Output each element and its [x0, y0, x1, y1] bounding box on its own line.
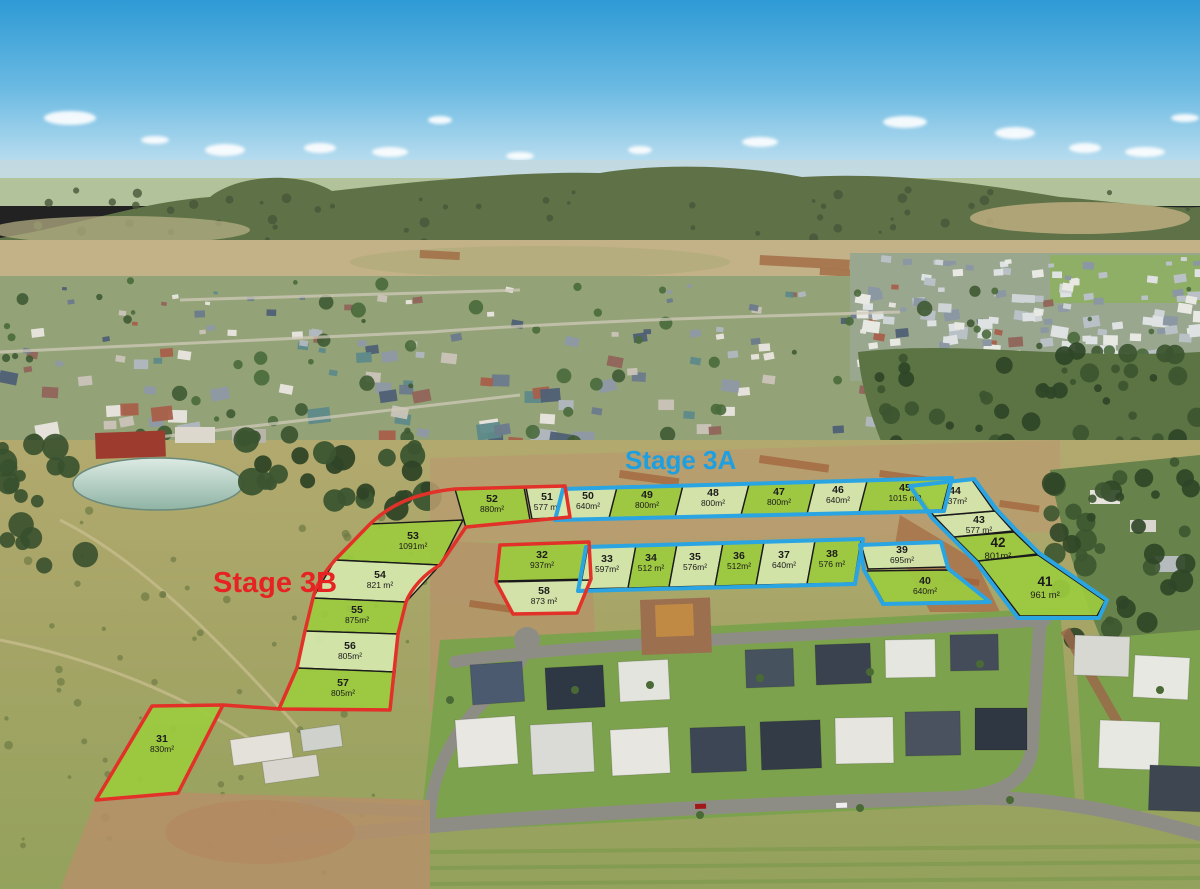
lot-49: 49800m²: [609, 485, 683, 518]
lot-38: 38576 m²: [807, 540, 861, 584]
stage-3b-label: Stage 3B: [213, 567, 337, 599]
aerial-photo: 31830m²32937m²33597m²34512 m²35576m²3651…: [0, 0, 1200, 889]
stage-3a-label: Stage 3A: [625, 445, 736, 475]
aerial-lot-map: 31830m²32937m²33597m²34512 m²35576m²3651…: [0, 0, 1200, 889]
lot-47: 47800m²: [741, 482, 815, 515]
lot-55: 55875m²: [305, 598, 406, 634]
lot-37: 37640m²: [756, 541, 815, 585]
lot-46: 46640m²: [807, 481, 867, 514]
lot-56: 56805m²: [297, 631, 398, 672]
lot-48: 48800m²: [675, 484, 749, 517]
lot-32: 32937m²: [497, 542, 591, 581]
lot-35: 35576m²: [669, 543, 723, 587]
lot-57: 57805m²: [279, 668, 395, 710]
